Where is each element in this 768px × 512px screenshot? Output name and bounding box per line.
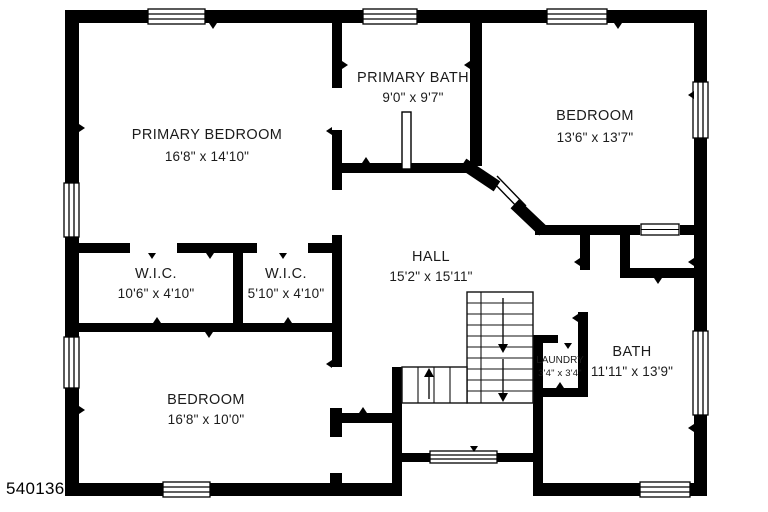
room-dimensions: 16'8" x 10'0" [167,410,245,430]
window-symbol-right-lower [693,331,708,415]
room-dimensions: 3'4" x 3'4" [536,367,584,380]
floorplan-canvas: PRIMARY BEDROOM 16'8" x 14'10" PRIMARY B… [0,0,768,512]
window-symbol-left-upper [64,183,79,237]
room-label-bedroom-bottom-left: BEDROOM 16'8" x 10'0" [167,390,245,430]
room-dimensions: 15'2" x 15'11" [389,267,472,286]
room-dimensions: 16'8" x 14'10" [132,146,283,168]
diagonal-wall [468,167,539,227]
window-symbol-bottom-left [163,482,210,497]
room-dimensions: 11'11" x 13'9" [591,362,673,381]
window-symbol-entry-landing [430,451,497,463]
room-name: W.I.C. [248,264,325,284]
room-name: HALL [389,248,472,267]
room-name: BEDROOM [167,390,245,410]
room-dimensions: 10'6" x 4'10" [118,284,195,304]
window-symbol-top-middle [363,9,417,24]
window-symbol-left-lower [64,337,79,388]
room-name: BEDROOM [556,105,634,127]
window-symbol-bottom-right [640,482,690,497]
room-label-bath: BATH 11'11" x 13'9" [591,343,673,381]
room-dimensions: 5'10" x 4'10" [248,284,325,304]
room-name: PRIMARY BATH [357,68,469,88]
room-label-laundry: LAUNDRY 3'4" x 3'4" [536,354,584,380]
listing-id: 5401362 [6,479,74,499]
closet-slider-bedroom [641,224,679,235]
room-dimensions: 13'6" x 13'7" [556,127,634,149]
room-label-hall: HALL 15'2" x 15'11" [389,248,472,286]
room-dimensions: 9'0" x 9'7" [357,88,469,108]
window-symbol-top-right [547,9,607,24]
room-name: LAUNDRY [536,354,584,367]
room-label-primary-bedroom: PRIMARY BEDROOM 16'8" x 14'10" [132,124,283,168]
room-name: PRIMARY BEDROOM [132,124,283,146]
door-symbols [402,112,679,235]
room-label-primary-bath: PRIMARY BATH 9'0" x 9'7" [357,68,469,108]
room-label-bedroom-top-right: BEDROOM 13'6" x 13'7" [556,105,634,149]
room-name: W.I.C. [118,264,195,284]
room-name: BATH [591,343,673,362]
door-leaf-primary-bath [402,112,411,169]
room-label-wic-left: W.I.C. 10'6" x 4'10" [118,264,195,304]
window-symbol-top-left [148,9,205,24]
room-label-wic-right: W.I.C. 5'10" x 4'10" [248,264,325,304]
window-symbol-right-upper [693,82,708,138]
stair-symbol [402,292,533,403]
